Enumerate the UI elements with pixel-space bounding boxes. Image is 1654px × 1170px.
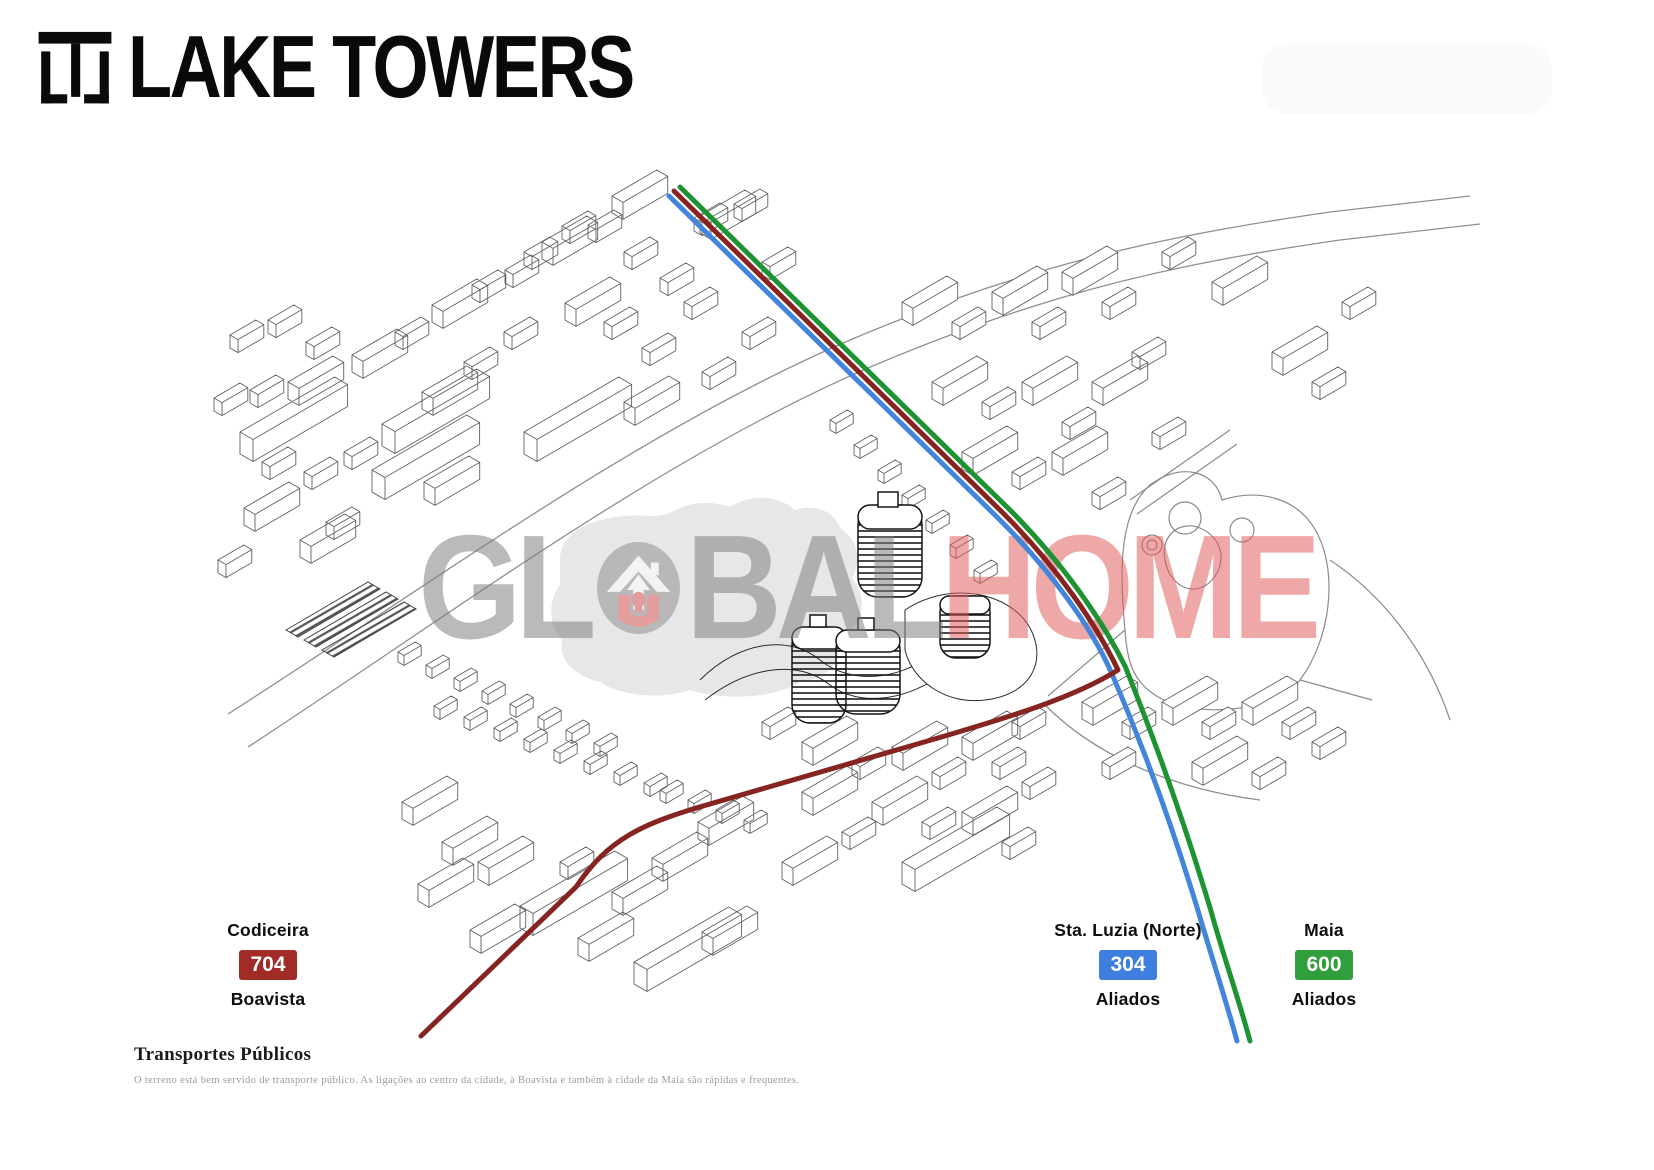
route-600-badge: 600 [1295, 950, 1353, 980]
watermark-text-mid: BAL [686, 508, 941, 668]
transit-label-group-704: Codiceira 704 Boavista [158, 920, 378, 1010]
footer-title: Transportes Públicos [134, 1044, 1534, 1066]
footer-description: O terreno está bem servido de transporte… [134, 1075, 1534, 1086]
watermark-text-right: HOME [941, 508, 1315, 668]
brand-logo: LAKE TOWERS [36, 28, 744, 106]
brand-name: LAKE TOWERS [128, 28, 633, 106]
route-704-badge: 704 [239, 950, 297, 980]
roads [228, 196, 1480, 800]
faint-watermark-blob [1262, 44, 1552, 114]
route-704-origin: Codiceira [158, 920, 378, 941]
barcode-buildings [286, 582, 416, 657]
route-304-badge: 304 [1099, 950, 1157, 980]
lake-towers-icon [36, 28, 114, 106]
watermark-text-left: GL [418, 508, 590, 668]
route-704-destination: Boavista [158, 989, 378, 1010]
transit-label-group-600: Maia 600 Aliados [1214, 920, 1434, 1010]
route-304-origin: Sta. Luzia (Norte) [1018, 920, 1238, 941]
page: { "brand": { "name": "LAKE TOWERS" }, "w… [0, 0, 1654, 1170]
footer: Transportes Públicos O terreno está bem … [134, 1044, 1534, 1086]
route-600-origin: Maia [1214, 920, 1434, 941]
transit-label-group-304: Sta. Luzia (Norte) 304 Aliados [1018, 920, 1238, 1010]
globalhome-house-icon [594, 539, 682, 637]
watermark: GL BAL HOME [418, 508, 1315, 668]
route-304-destination: Aliados [1018, 989, 1238, 1010]
route-600-destination: Aliados [1214, 989, 1434, 1010]
